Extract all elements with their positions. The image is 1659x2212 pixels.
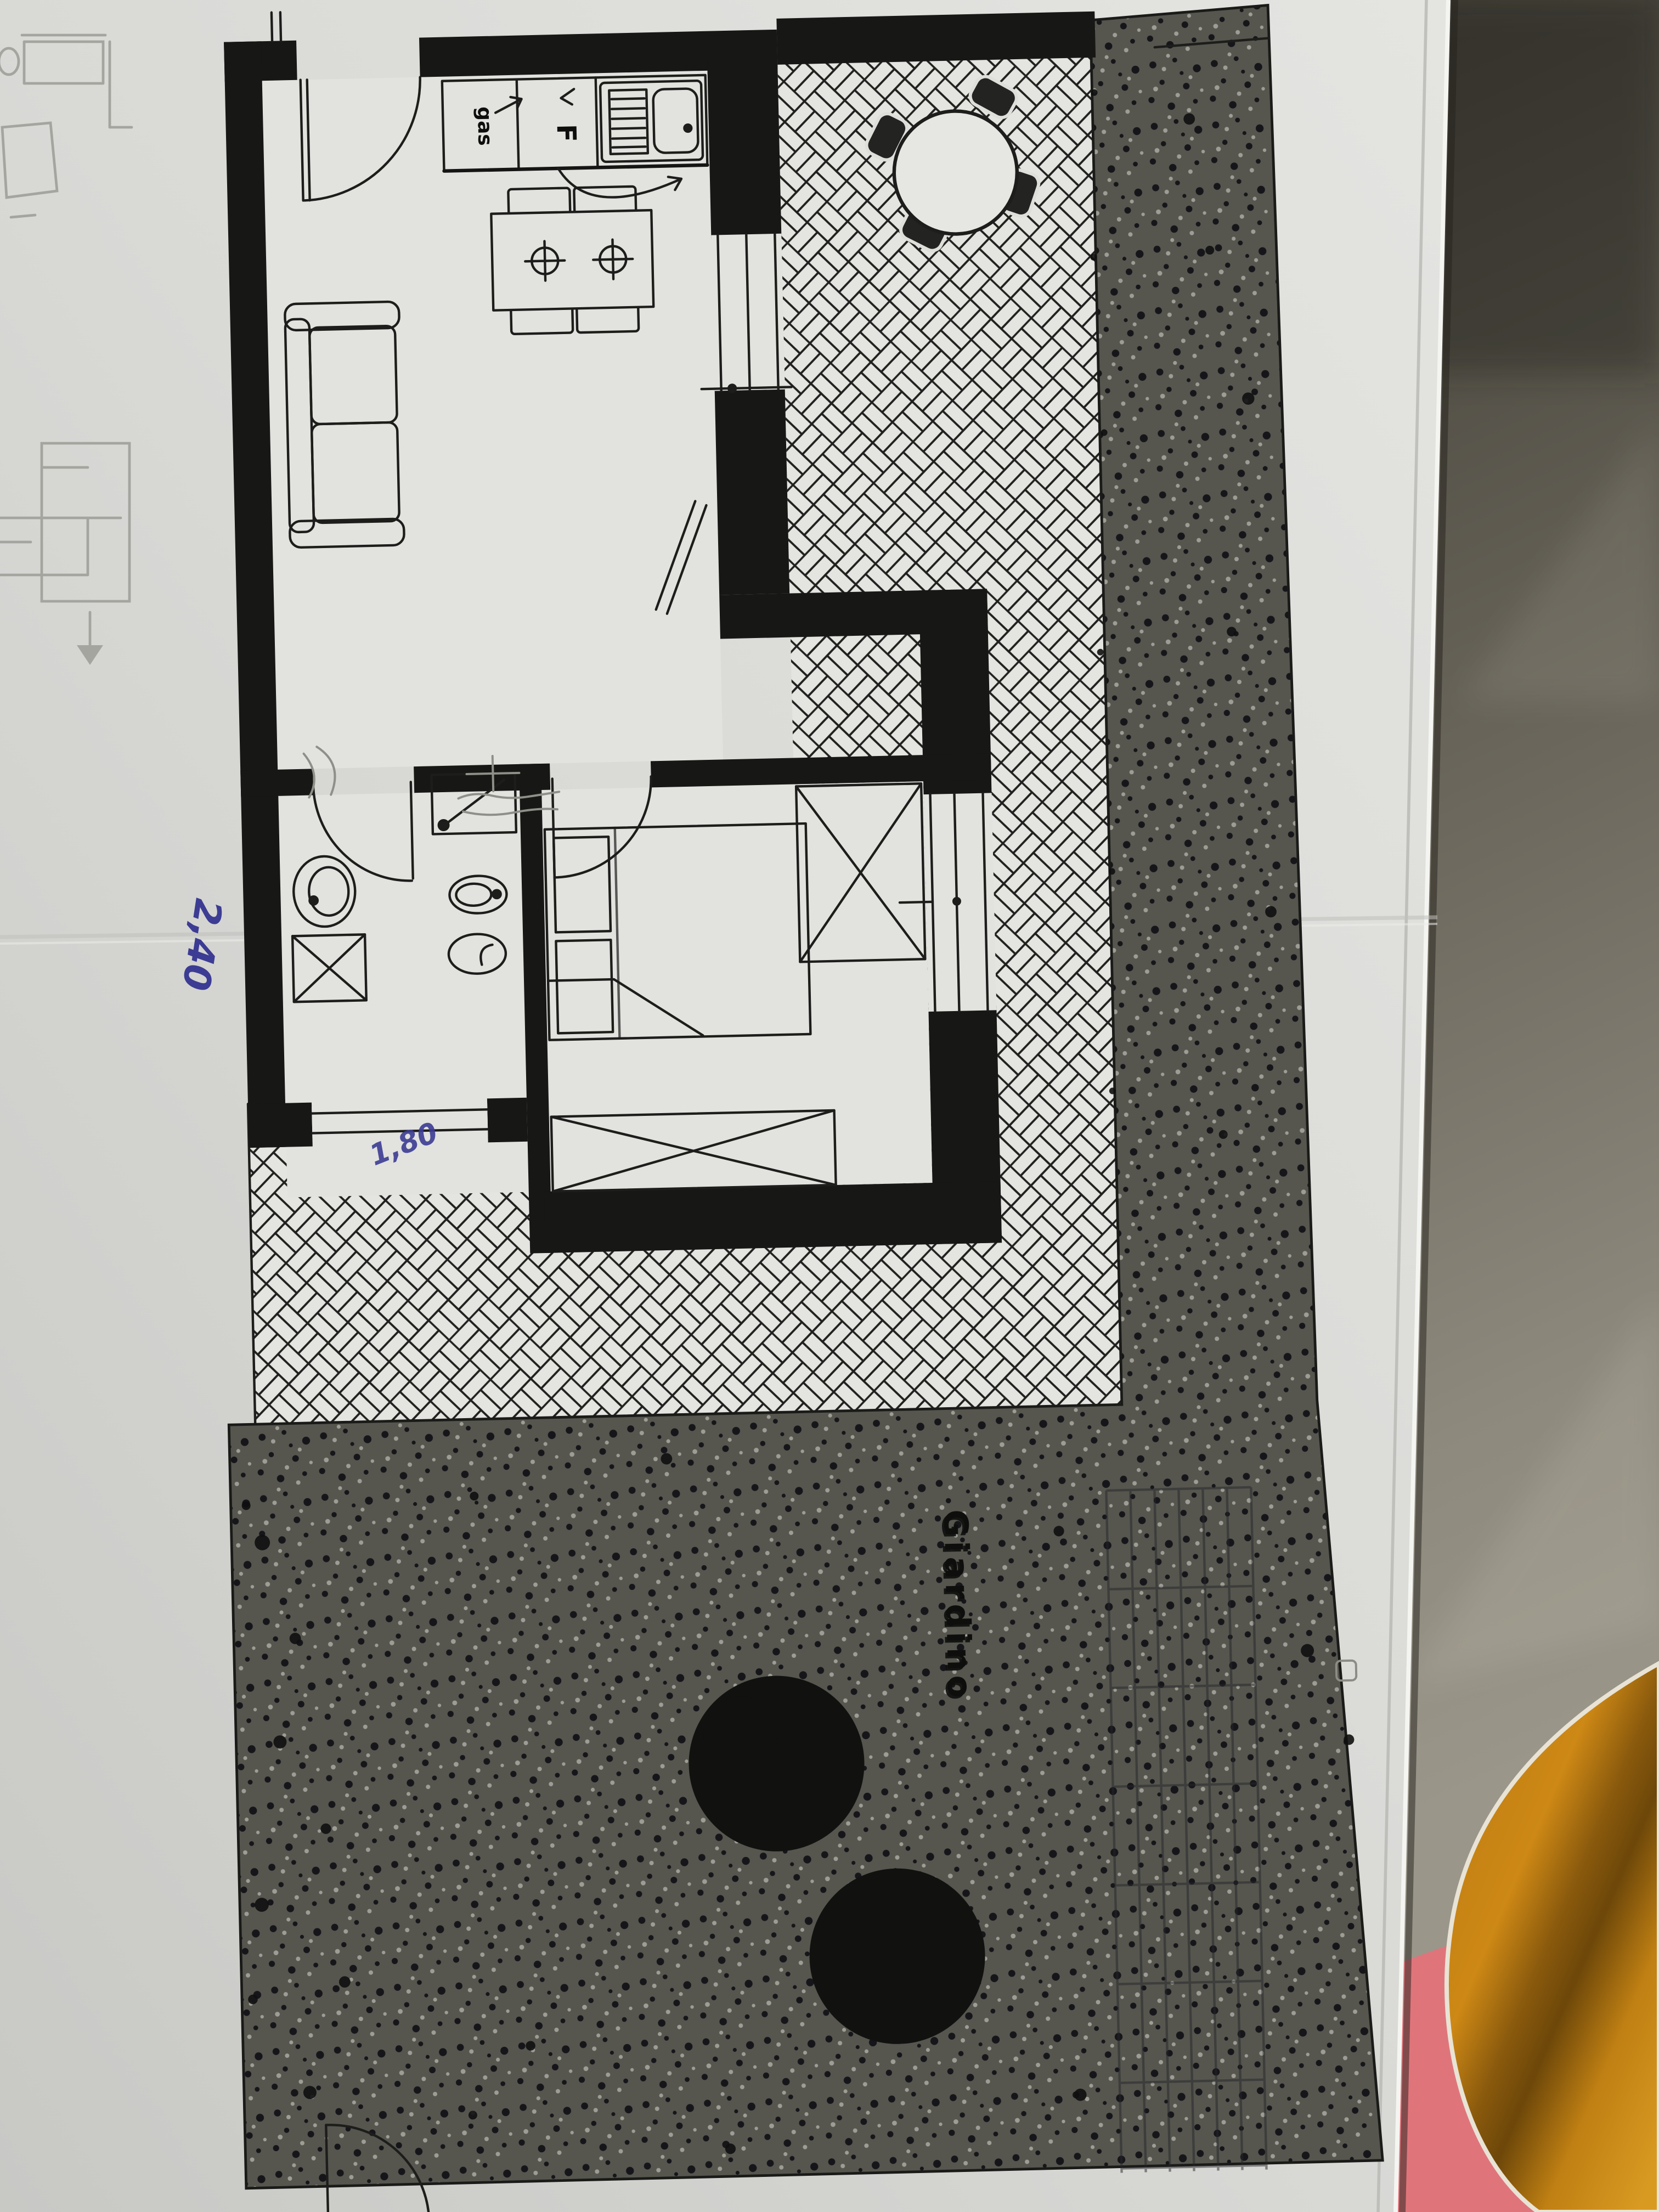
garden-label: Giardino — [936, 1509, 979, 1703]
fridge-label: F — [551, 124, 582, 143]
living-kitchen-room — [262, 71, 723, 770]
living-room-window — [711, 234, 785, 391]
photo-of-floor-plan: Giardino Giardino — [0, 0, 1659, 2212]
gas-label: gas — [473, 106, 496, 146]
dining-table — [491, 210, 653, 311]
floor-plan: Giardino Giardino — [151, 0, 1384, 2212]
patio-round-table — [893, 110, 1018, 235]
